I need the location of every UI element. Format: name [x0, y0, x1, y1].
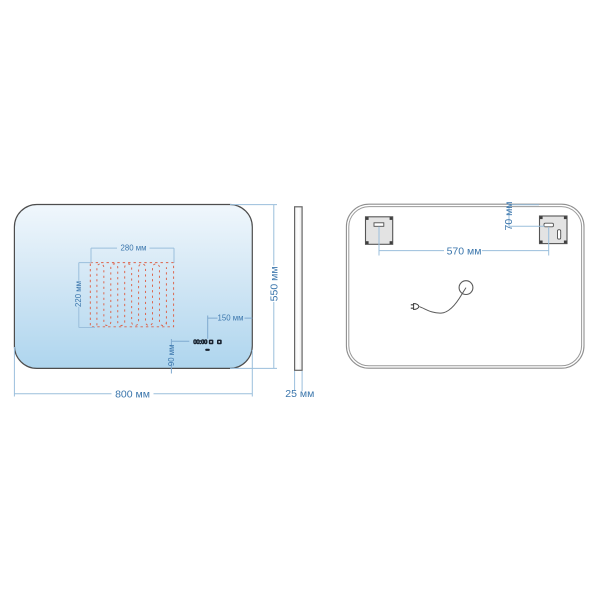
svg-text:70 мм: 70 мм — [503, 201, 515, 230]
svg-text:570 мм: 570 мм — [447, 245, 482, 257]
svg-text:90 мм: 90 мм — [167, 345, 176, 367]
svg-text:00:00: 00:00 — [193, 339, 208, 346]
svg-text:800 мм: 800 мм — [115, 388, 150, 400]
svg-text:150 мм: 150 мм — [218, 314, 244, 323]
svg-text:550 мм: 550 мм — [269, 266, 281, 301]
svg-text:280 мм: 280 мм — [121, 244, 147, 253]
svg-text:25 мм: 25 мм — [285, 388, 314, 400]
svg-text:220 мм: 220 мм — [74, 281, 83, 307]
